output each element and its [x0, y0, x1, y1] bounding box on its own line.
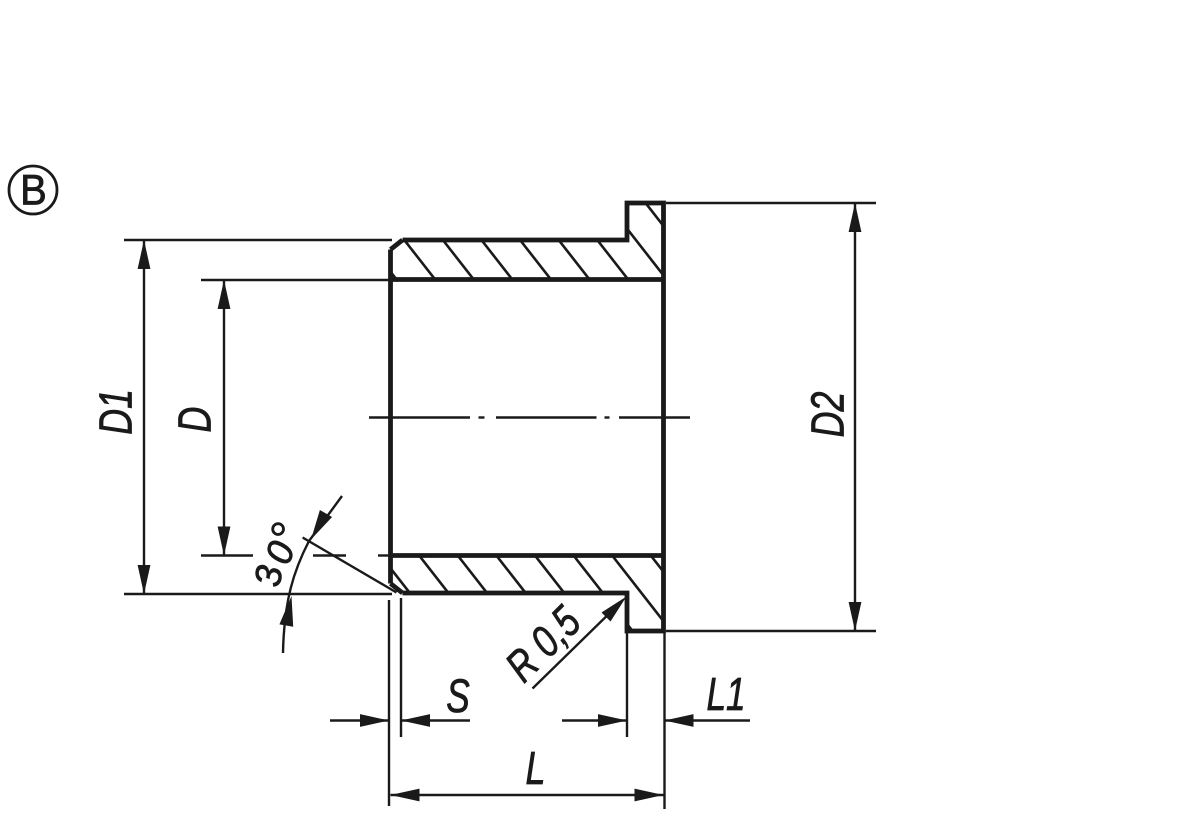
svg-text:L: L: [526, 743, 546, 794]
svg-text:S: S: [446, 669, 470, 722]
svg-text:D2: D2: [802, 392, 853, 438]
svg-text:L1: L1: [706, 668, 745, 720]
svg-text:D: D: [169, 407, 220, 433]
svg-text:D1: D1: [90, 389, 141, 435]
svg-text:B: B: [20, 165, 47, 214]
